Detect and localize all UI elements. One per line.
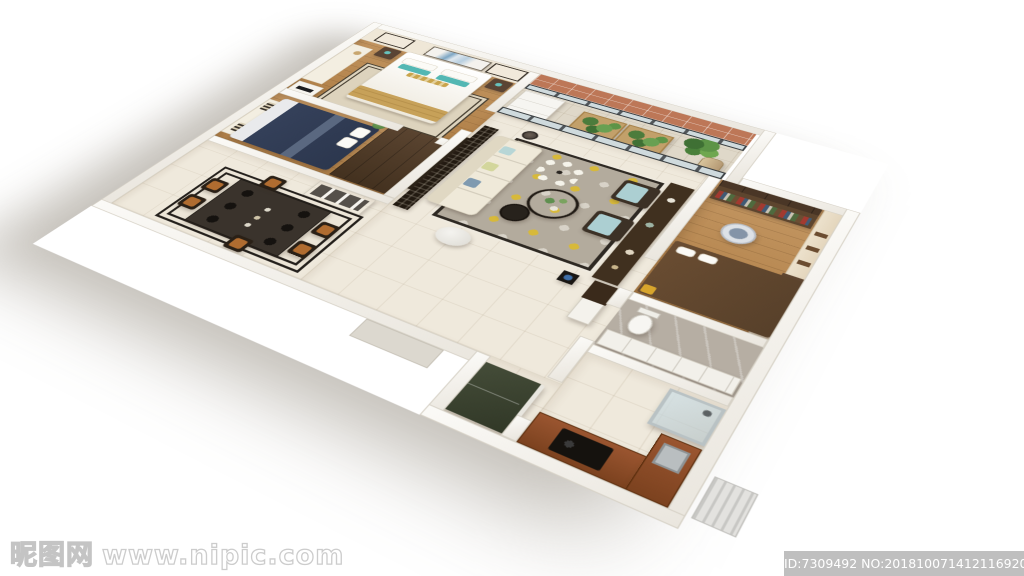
nipic-logo: 昵图网 <box>10 540 94 571</box>
image-id-bar: ID:7309492 NO:20181007141211692000 <box>784 551 1024 576</box>
watermark-site: 昵图网www.nipic.com <box>10 533 344 572</box>
apartment-plan <box>33 22 889 529</box>
nipic-url: www.nipic.com <box>102 540 344 571</box>
page: { "image_description": "Photorealistic 3… <box>0 0 1024 576</box>
render-scene <box>0 0 1024 576</box>
